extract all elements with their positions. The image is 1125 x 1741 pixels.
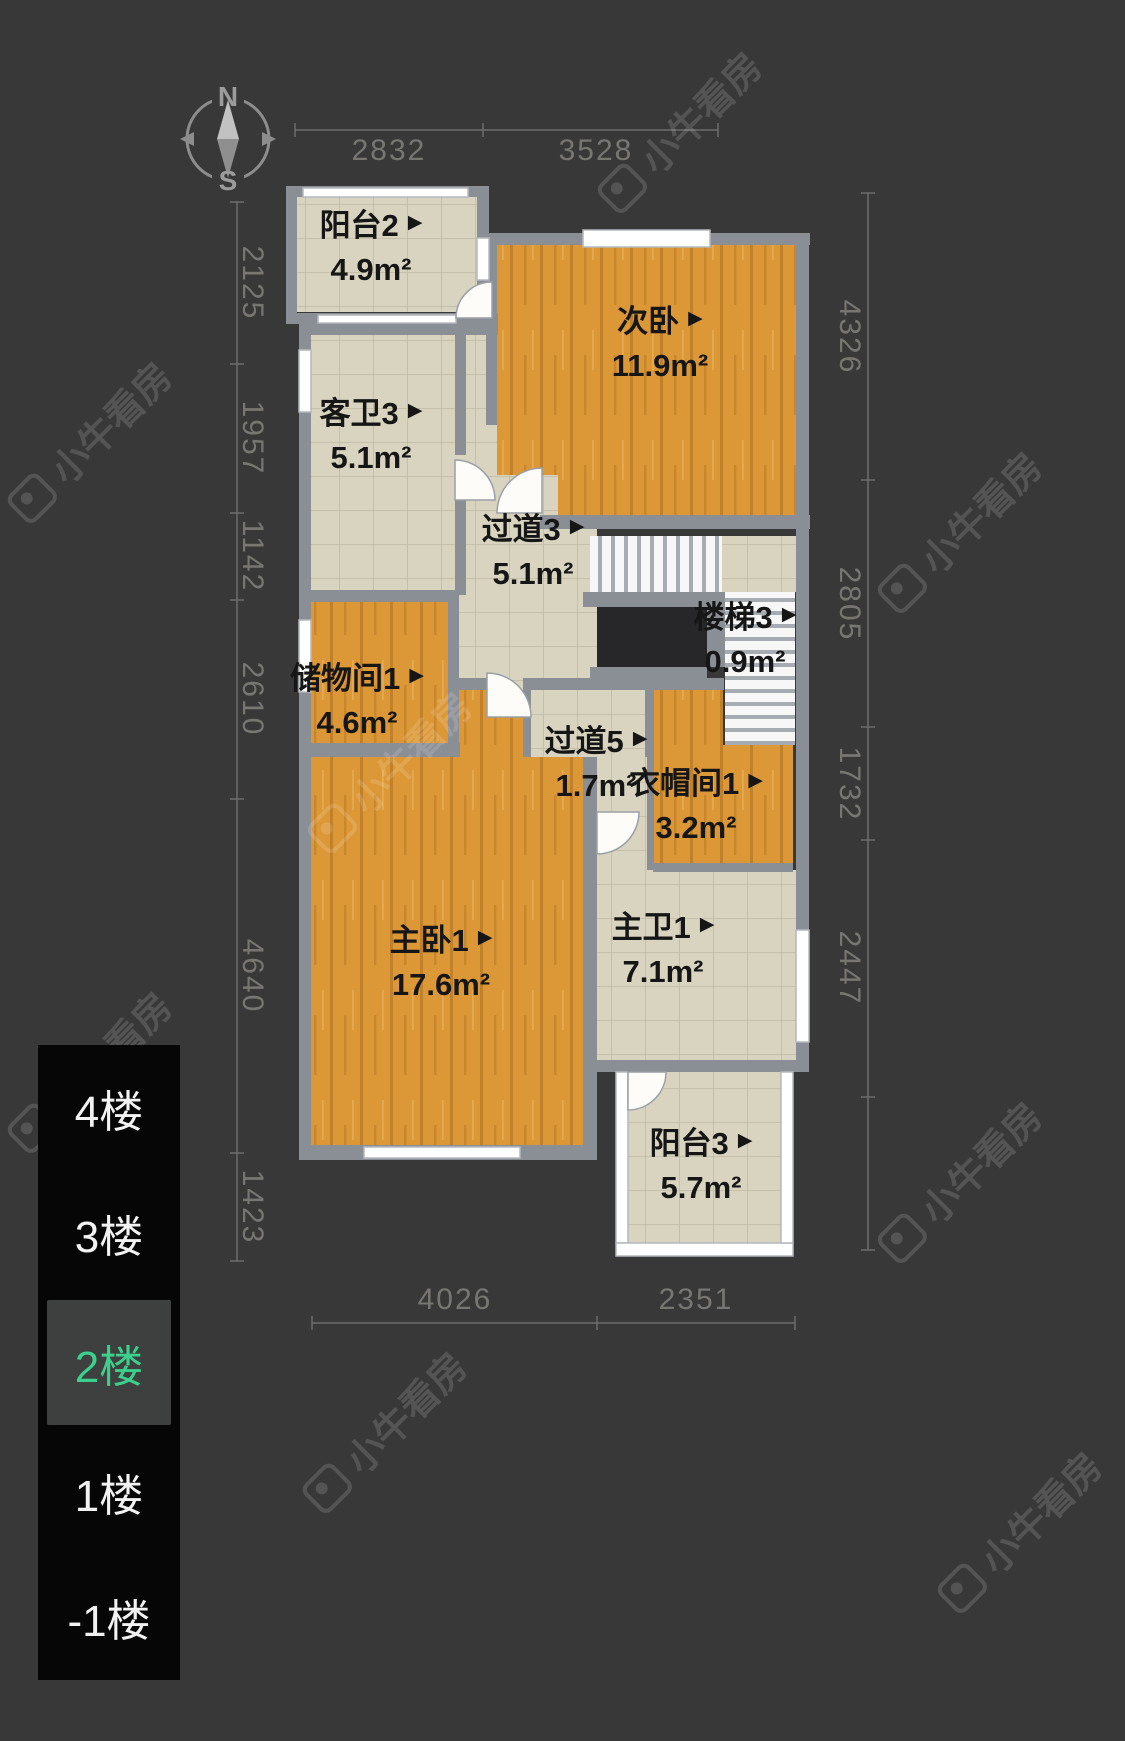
room-name: 过道3	[482, 504, 561, 549]
room-area: 7.1m²	[612, 954, 715, 990]
room-name: 楼梯3	[694, 592, 773, 637]
room-label-masterbath1[interactable]: 主卫1▶ 7.1m²	[612, 902, 715, 990]
room-arrow-icon: ▶	[408, 213, 423, 232]
stair-landing-floor	[722, 536, 796, 592]
dim-left-5: 4640	[235, 939, 269, 1014]
compass: N S	[180, 80, 276, 196]
room-label-balcony3[interactable]: 阳台3▶ 5.7m²	[650, 1118, 753, 1206]
room-arrow-icon: ▶	[738, 1131, 753, 1150]
room-name: 衣帽间1	[629, 758, 739, 803]
room-name: 过道5	[545, 716, 624, 761]
room-name: 阳台3	[650, 1118, 729, 1163]
dim-top-2: 3528	[559, 134, 634, 168]
room-label-storage1[interactable]: 储物间1▶ 4.6m²	[290, 653, 424, 741]
room-label-corridor3[interactable]: 过道3▶ 5.1m²	[482, 504, 585, 592]
room-name: 客卫3	[320, 388, 399, 433]
room-arrow-icon: ▶	[570, 517, 585, 536]
room-name: 阳台2	[320, 200, 399, 245]
dim-right-4: 2447	[832, 931, 866, 1006]
dim-right-2: 2805	[832, 567, 866, 642]
dim-bottom-1: 4026	[418, 1283, 493, 1317]
room-area: 17.6m²	[390, 967, 493, 1003]
room-area: 5.1m²	[320, 440, 423, 476]
dim-left-6: 1423	[235, 1170, 269, 1245]
floor-item-4[interactable]: 4楼	[38, 1045, 180, 1170]
room-label-balcony2[interactable]: 阳台2▶ 4.9m²	[320, 200, 423, 288]
room-label-stairs3[interactable]: 楼梯3▶ 0.9m²	[694, 592, 797, 680]
room-arrow-icon: ▶	[748, 771, 763, 790]
dim-left-2: 1957	[235, 401, 269, 476]
floor-item-2-selected[interactable]: 2楼	[47, 1300, 171, 1425]
room-label-master1[interactable]: 主卧1▶ 17.6m²	[390, 915, 493, 1003]
dim-left-1: 2125	[235, 246, 269, 321]
floor-item-3[interactable]: 3楼	[38, 1170, 180, 1295]
room-arrow-icon: ▶	[478, 928, 493, 947]
room-name: 主卧1	[390, 915, 469, 960]
room-area: 3.2m²	[629, 810, 763, 846]
room-area: 4.9m²	[320, 252, 423, 288]
room-name: 次卧	[617, 296, 679, 341]
room-label-wardrobe1[interactable]: 衣帽间1▶ 3.2m²	[629, 758, 763, 846]
dim-right-3: 1732	[832, 747, 866, 822]
room-name: 储物间1	[290, 653, 400, 698]
floor-selector: 4楼 3楼 2楼 1楼 -1楼	[38, 1045, 180, 1680]
dim-right-1: 4326	[832, 300, 866, 375]
floor-item-minus1[interactable]: -1楼	[38, 1555, 180, 1680]
dim-left-3: 1142	[235, 520, 269, 593]
room-arrow-icon: ▶	[408, 401, 423, 420]
room-area: 5.1m²	[482, 556, 585, 592]
room-name: 主卫1	[612, 902, 691, 947]
room-arrow-icon: ▶	[633, 729, 648, 748]
dim-line-bottom	[312, 1316, 795, 1330]
floorplan-page: { "watermark": { "text": "小牛看房" }, "comp…	[0, 0, 1125, 1741]
room-area: 11.9m²	[612, 348, 709, 384]
dim-top-1: 2832	[352, 134, 427, 168]
room-label-bedroom2[interactable]: 次卧▶ 11.9m²	[612, 296, 709, 384]
room-area: 5.7m²	[650, 1170, 753, 1206]
floor-item-1[interactable]: 1楼	[38, 1429, 180, 1554]
room-arrow-icon: ▶	[700, 915, 715, 934]
room-label-bath3[interactable]: 客卫3▶ 5.1m²	[320, 388, 423, 476]
stair-void	[597, 607, 707, 667]
compass-north-label: N	[218, 81, 238, 112]
room-arrow-icon: ▶	[688, 309, 703, 328]
dim-bottom-2: 2351	[659, 1283, 734, 1317]
dim-left-4: 2610	[235, 662, 269, 737]
room-arrow-icon: ▶	[782, 605, 797, 624]
compass-south-label: S	[219, 165, 238, 196]
room-area: 4.6m²	[290, 705, 424, 741]
room-area: 0.9m²	[694, 644, 797, 680]
room-arrow-icon: ▶	[409, 666, 424, 685]
